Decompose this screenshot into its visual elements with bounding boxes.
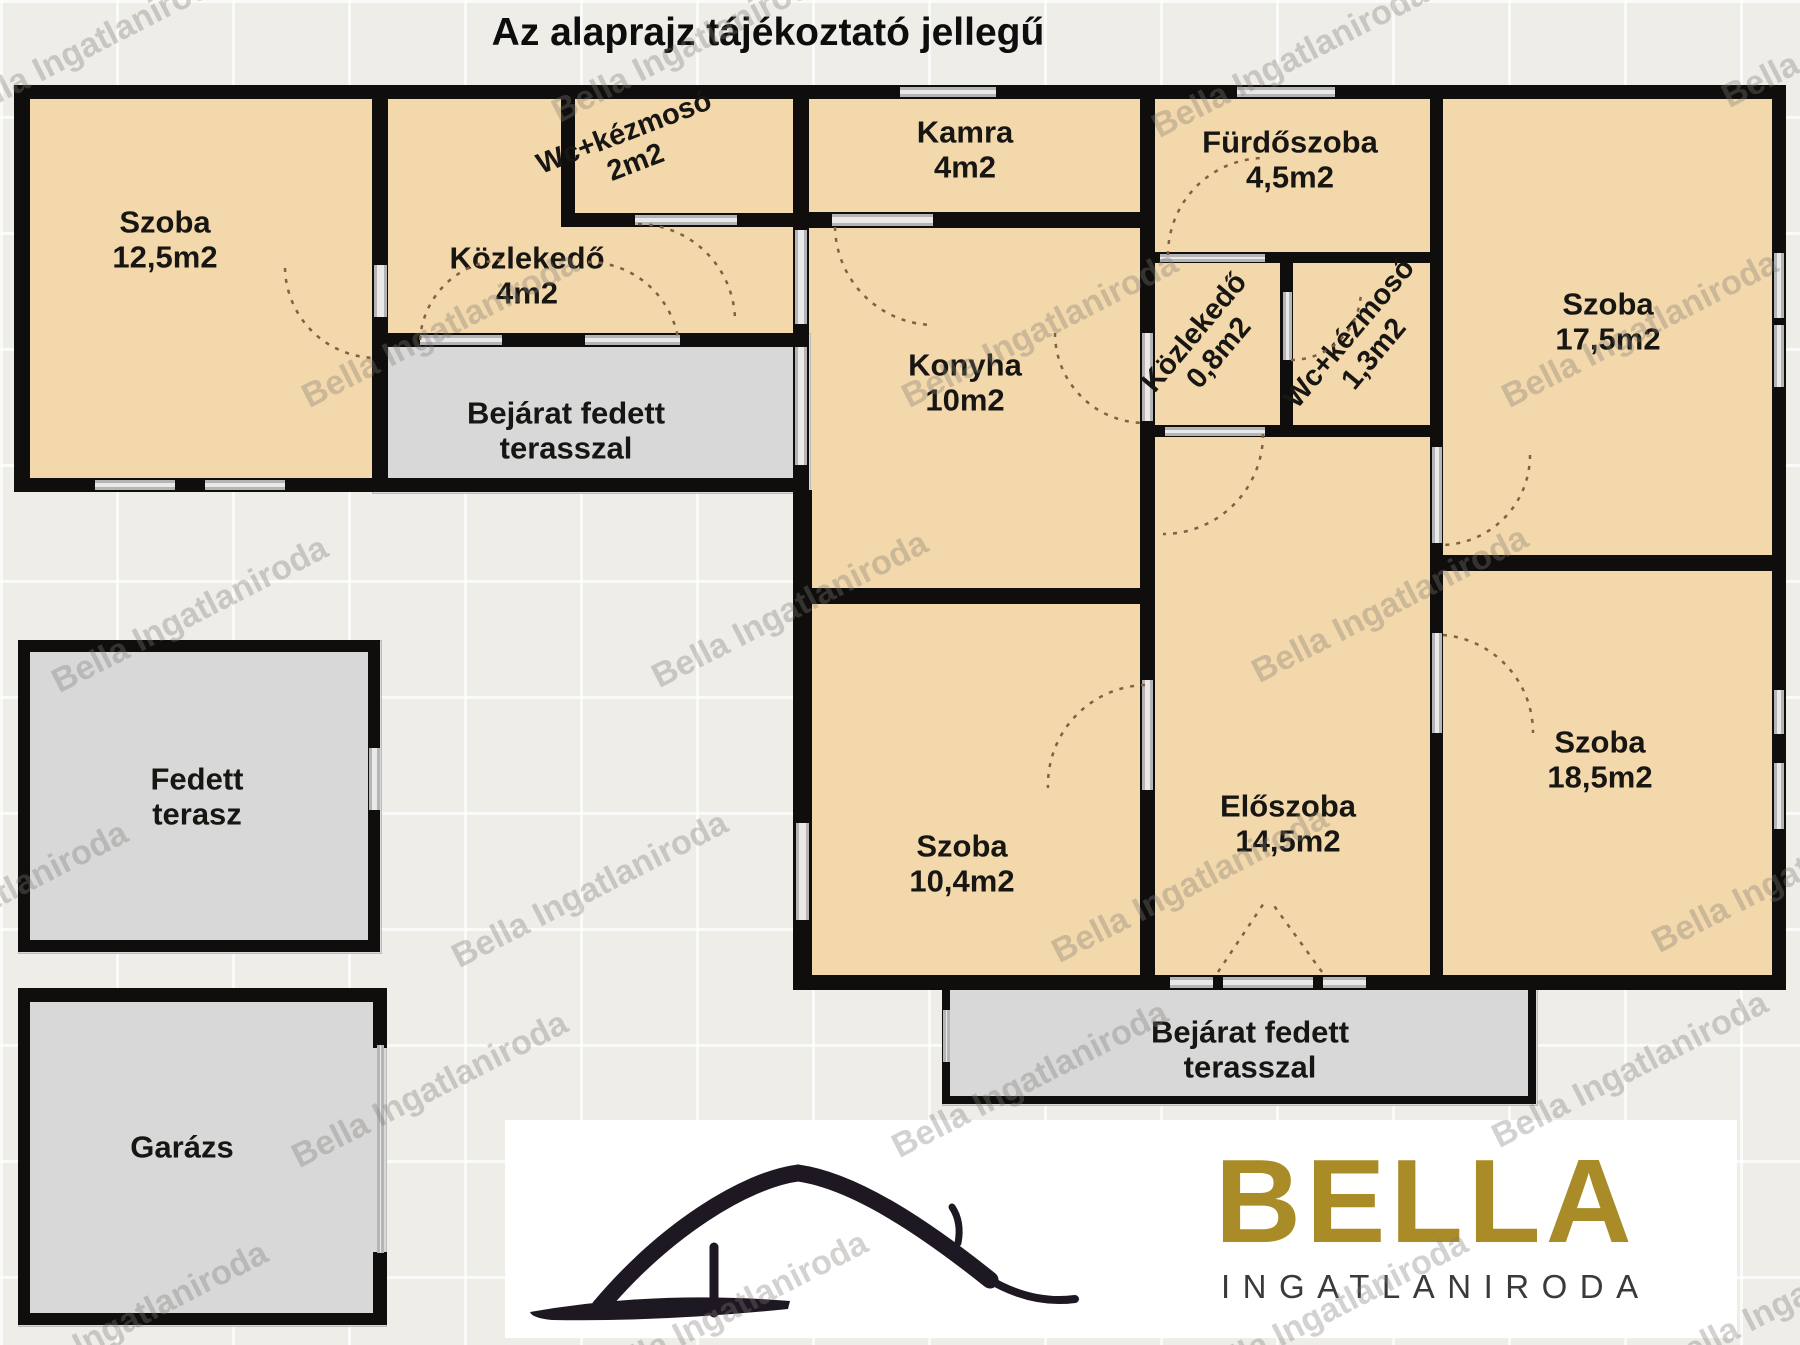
wall [18, 640, 380, 652]
room-name: Szoba [1547, 725, 1652, 760]
wall [1772, 85, 1786, 990]
room-area: 4,5m2 [1202, 160, 1378, 195]
wall [18, 940, 380, 952]
watermark: Bella Ingatlaniroda [446, 804, 735, 977]
door-opening [943, 1010, 950, 1062]
wall [18, 988, 385, 1002]
room-area: 12,5m2 [112, 240, 217, 275]
door-opening [635, 215, 737, 225]
room-label: Fürdőszoba4,5m2 [1202, 125, 1378, 194]
wall [1313, 975, 1323, 990]
floor-plan: Az alaprajz tájékoztató jellegű [0, 0, 1800, 1345]
door-opening [1432, 447, 1442, 543]
wall [18, 1313, 385, 1325]
room-name: Bejárat fedett [467, 396, 665, 431]
window-opening [795, 347, 807, 465]
room-name: Fedett [151, 762, 244, 797]
wall [1140, 85, 1155, 986]
entrance-door-opening [1170, 977, 1366, 988]
wall [373, 988, 387, 1048]
window-opening [95, 480, 175, 490]
window-opening [796, 823, 809, 920]
room-area: 10,4m2 [909, 864, 1014, 899]
room-label: Bejárat fedettterasszal [1151, 1015, 1349, 1084]
room-label: Szoba12,5m2 [112, 205, 217, 274]
room-fill-top-band [14, 85, 1786, 492]
garage-door-opening [377, 1045, 384, 1253]
room-name: terasszal [1151, 1050, 1349, 1085]
room-label: Kamra4m2 [917, 115, 1014, 184]
door-opening [1165, 427, 1265, 436]
door-opening [585, 335, 680, 345]
door-opening [1142, 680, 1153, 790]
room-label: Bejárat fedettterasszal [467, 396, 665, 465]
door-opening [832, 214, 933, 226]
wall [1213, 975, 1223, 990]
room-name: Szoba [909, 829, 1014, 864]
wall [14, 85, 30, 492]
window-opening [1774, 325, 1784, 387]
room-name: terasz [151, 797, 244, 832]
door-opening [374, 265, 387, 317]
room-name: terasszal [467, 431, 665, 466]
room-label: Szoba18,5m2 [1547, 725, 1652, 794]
door-opening [795, 230, 807, 324]
logo-box: BELLA INGATLANIRODA [505, 1120, 1737, 1338]
window-opening [1774, 690, 1784, 734]
wall [373, 1252, 387, 1325]
door-opening [1283, 292, 1292, 360]
room-name: Kamra [917, 115, 1014, 150]
window-opening [900, 87, 996, 97]
room-label: Fedettterasz [151, 762, 244, 831]
room-label: Garázs [130, 1131, 233, 1166]
window-opening [1774, 763, 1784, 829]
wall [18, 988, 30, 1325]
watermark: Bella Ingatlaniroda [1716, 0, 1800, 116]
room-name: Bejárat fedett [1151, 1015, 1349, 1050]
door-opening [369, 748, 380, 810]
room-label: Szoba10,4m2 [909, 829, 1014, 898]
wall [1528, 988, 1536, 1102]
room-name: Szoba [112, 205, 217, 240]
room-name: Fürdőszoba [1202, 125, 1378, 160]
room-name: Garázs [130, 1131, 233, 1166]
room-area: 18,5m2 [1547, 760, 1652, 795]
window-opening [205, 480, 285, 490]
room-area: 4m2 [917, 150, 1014, 185]
door-opening [1432, 633, 1442, 733]
